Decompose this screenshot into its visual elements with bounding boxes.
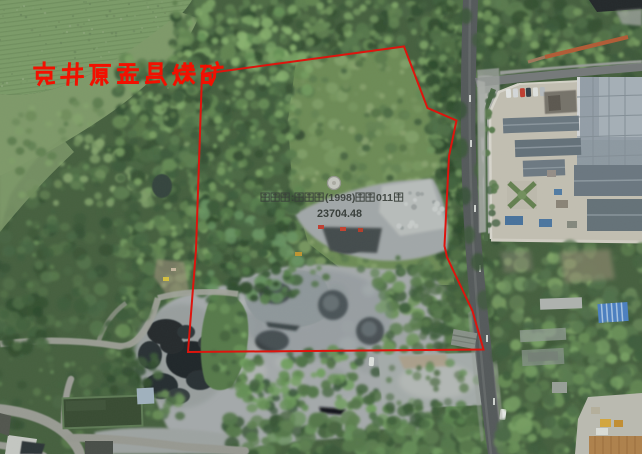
svg-text::: : bbox=[291, 193, 294, 204]
svg-text:23704.48: 23704.48 bbox=[317, 208, 362, 220]
svg-text:(1998): (1998) bbox=[325, 192, 355, 204]
svg-text:011: 011 bbox=[376, 192, 393, 204]
